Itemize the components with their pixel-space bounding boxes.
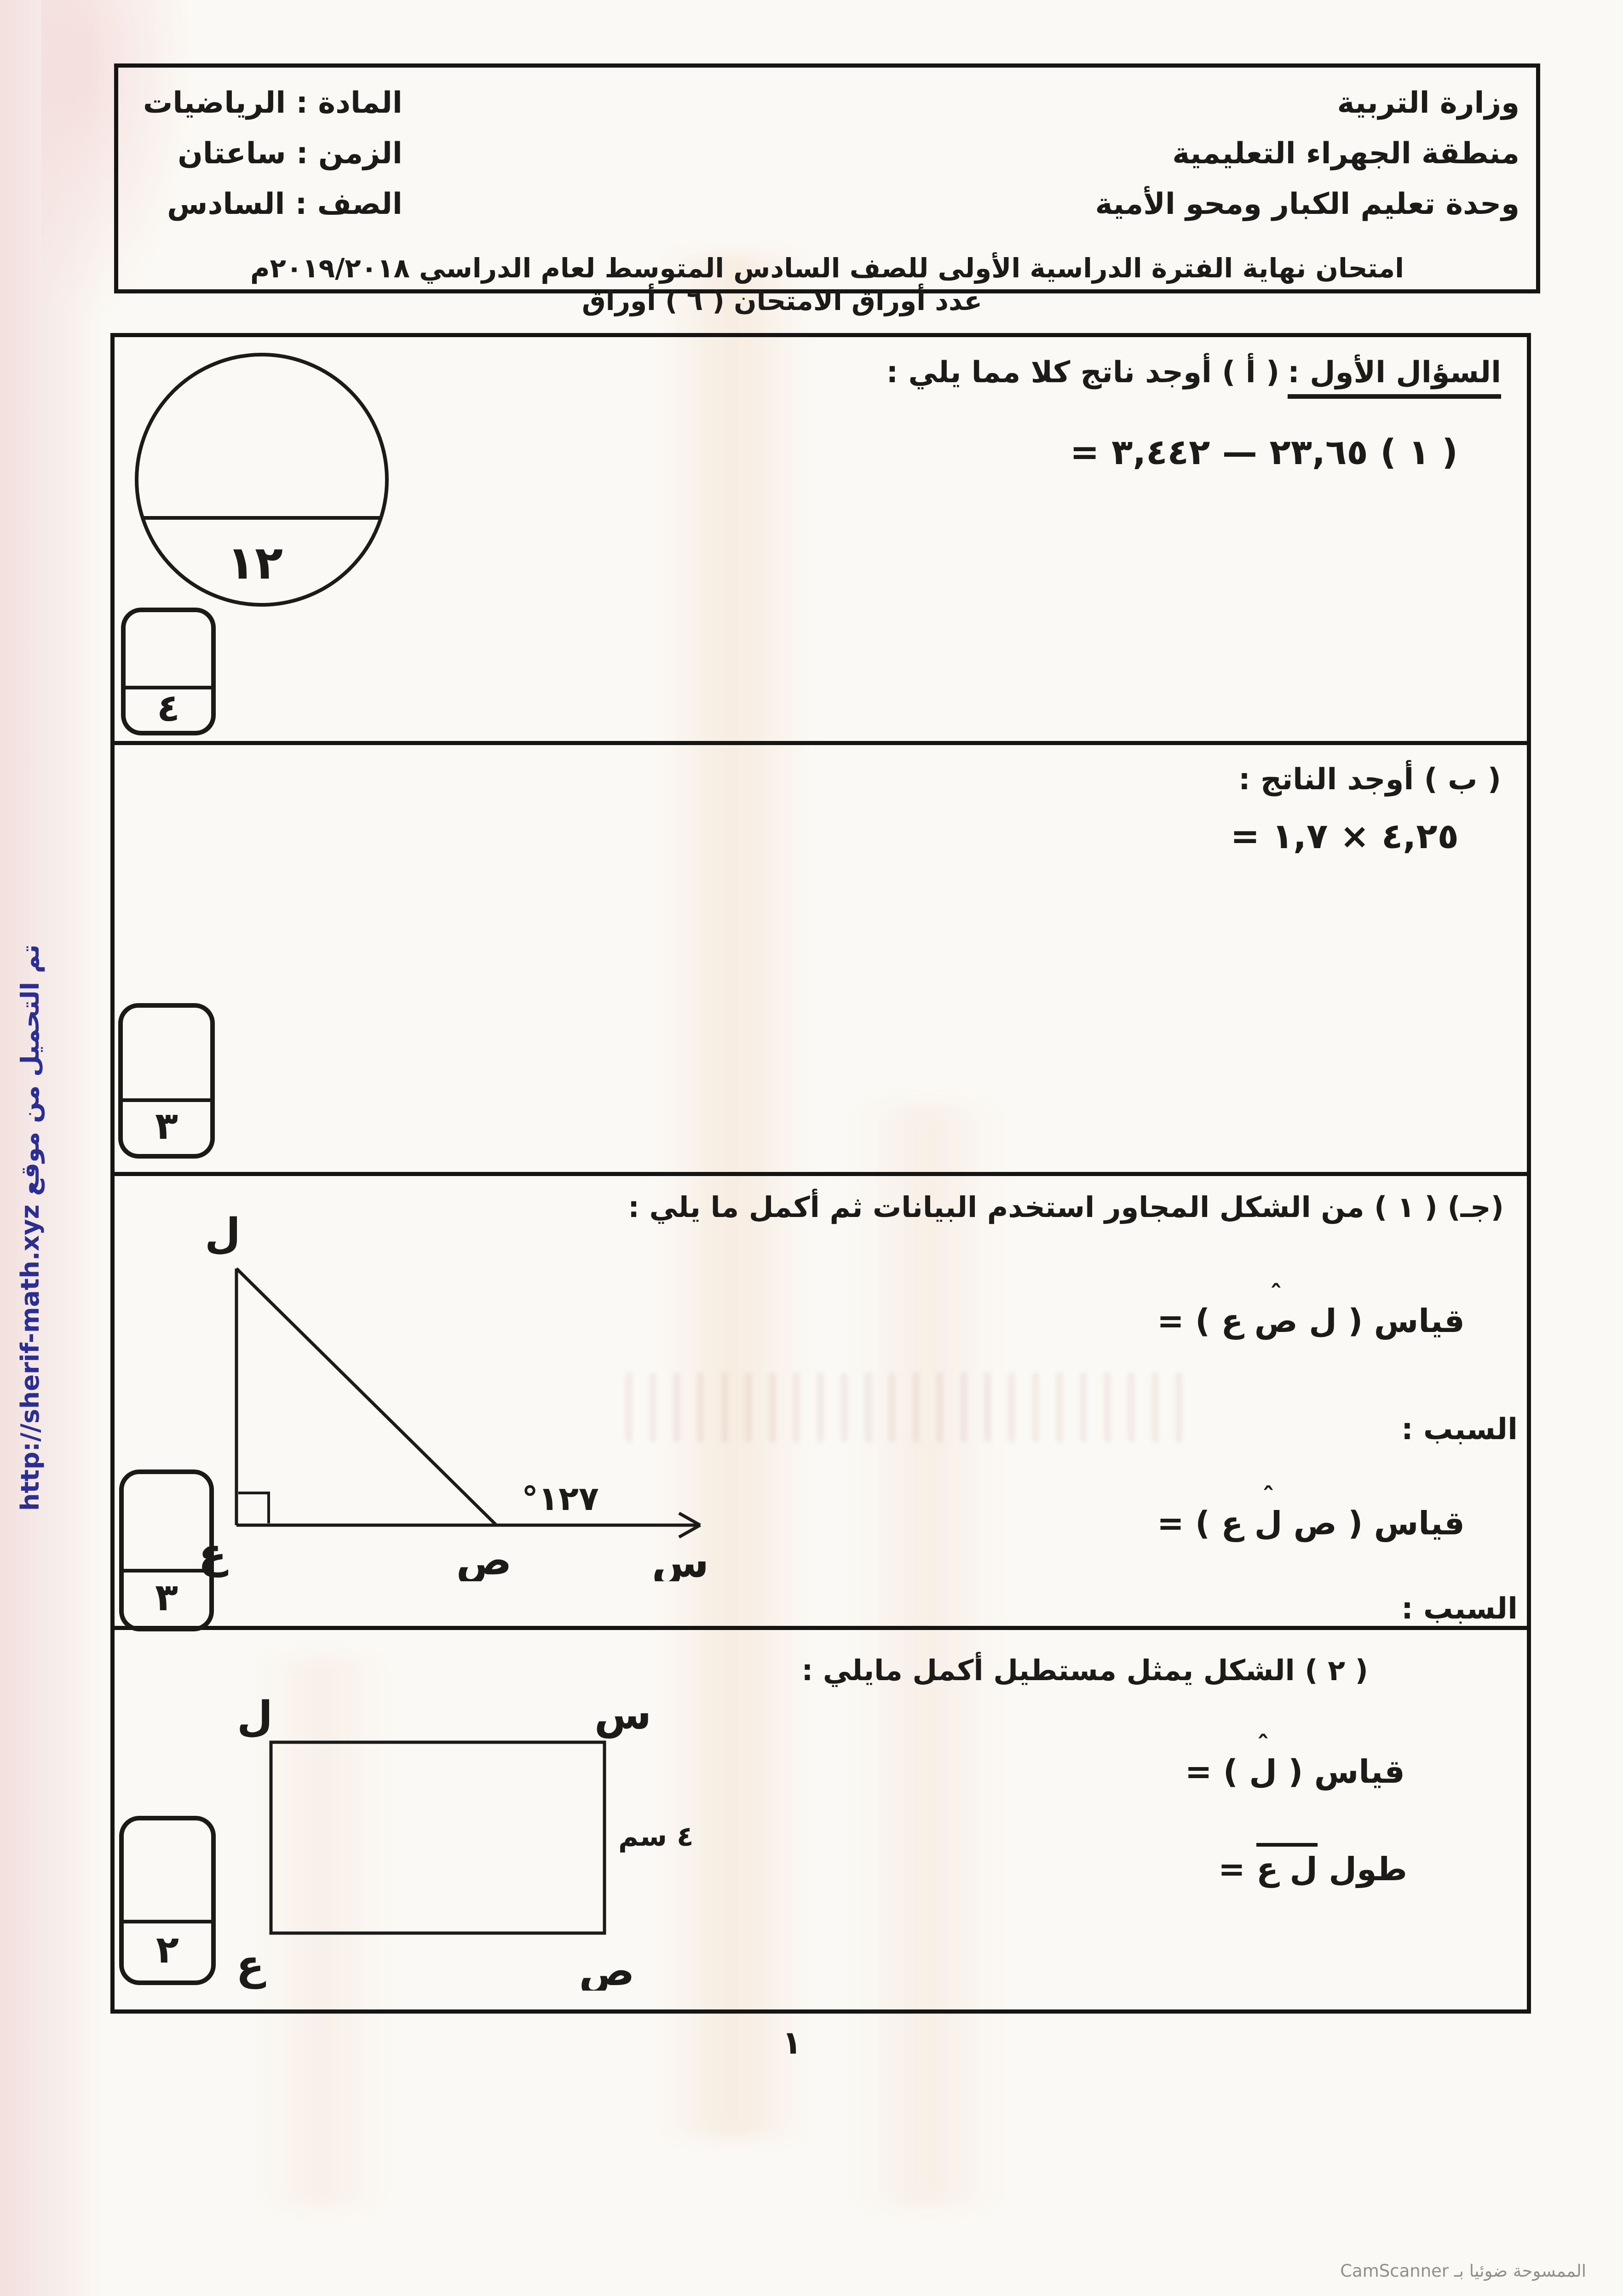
total-marks-circle-figure: ١٢ [126,349,397,618]
q1a-title-rest: ( أ ) أوجد ناتج كلا مما يلي : [886,356,1280,390]
exam-title: امتحان نهاية الفترة الدراسية الأولى للصف… [118,253,1536,284]
marks-value-q2: ٢ [124,1920,211,1980]
triangle-point-label: ص [456,1536,512,1581]
main-question-box: ١٢ السؤال الأول :( أ ) أوجد ناتج كلا مما… [110,333,1531,2014]
section-divider-2 [114,1172,1528,1176]
rect-top-right-label: س [594,1696,651,1739]
measure-suffix: ع ) = [1157,1504,1255,1542]
camscanner-credit: الممسوحة ضوئيا بـ CamScanner [1340,2261,1586,2281]
subject-line: المادة : الرياضيات [143,78,403,128]
header-left-column: المادة : الرياضيات الزمن : ساعتان الصف :… [143,78,403,230]
scanned-exam-page: { "header": { "ministry": "وزارة التربية… [0,0,1623,2296]
angle-hat-symbol: ˆ [1262,1484,1274,1510]
grade-line: الصف : السادس [143,179,403,230]
q2-length: طول ل ع = [1218,1850,1407,1888]
marks-value-q1a: ٤ [126,686,211,731]
measure-prefix: قياس ( [1277,1753,1405,1791]
q2-title: ( ٢ ) الشكل يمثل مستطيل أكمل مايلي : [801,1653,1368,1687]
measure-prefix: قياس ( ص [1282,1504,1465,1542]
segment-overline: ل ع [1256,1843,1318,1888]
marks-value-q1c: ٣ [124,1569,209,1627]
measure-prefix: قياس ( ل [1298,1302,1465,1340]
q1c-measure-1: قياس ( ل ˆص ع ) = [1157,1275,1465,1340]
rect-bottom-left-label: ع [239,1941,266,1989]
q1a-equation: ( ١ ) ٢٣,٦٥ — ٣,٤٤٢ = [1070,431,1458,472]
page-number: ١ [782,2024,802,2061]
measure-suffix: ع ) = [1157,1302,1255,1340]
site-watermark: تم التحميل من موقع http://sherif-math.xy… [16,944,45,1511]
section-divider-1 [114,741,1528,745]
rect-bottom-right-label: ص [579,1947,634,1991]
header-right-column: وزارة التربية منطقة الجهراء التعليمية وح… [1095,78,1519,230]
triangle-apex-label: ل [205,1210,241,1258]
q1b-title: ( ب ) أوجد الناتج : [1238,763,1501,797]
sheets-count: عدد أوراق الامتحان ( ٦ ) أوراق [322,285,1242,316]
measure-suffix: ) = [1185,1753,1249,1791]
markbox-q1b: ٣ [118,1003,215,1159]
district-line: منطقة الجهراء التعليمية [1095,128,1519,179]
q1c-measure-2: قياس ( ص ˆل ع ) = [1157,1478,1465,1542]
time-line: الزمن : ساعتان [143,128,403,179]
markbox-q1a: ٤ [121,608,216,735]
triangle-figure: ل ع ص س °١٢٧ [200,1209,733,1581]
unit-line: وحدة تعليم الكبار ومحو الأمية [1095,179,1519,230]
rect-top-left-label: ل [239,1696,273,1741]
marks-value-q1b: ٣ [123,1098,210,1154]
triangle-ray-label: س [652,1538,709,1581]
q1c-reason-2: السبب : [1401,1592,1518,1626]
ministry-line: وزارة التربية [1095,78,1519,128]
length-prefix: طول [1318,1850,1407,1888]
angle-hat-symbol: ˆ [1257,1733,1269,1758]
rect-side-length-label: ٤ سم [618,1820,694,1853]
markbox-q1c: ٣ [119,1469,214,1631]
header-box: وزارة التربية منطقة الجهراء التعليمية وح… [114,63,1540,293]
angle-hat-symbol: ˆ [1270,1282,1282,1307]
section-divider-3 [114,1626,1528,1630]
q1c-title: (جـ) ( ١ ) من الشكل المجاور استخدم البيا… [628,1190,1504,1224]
markbox-q2: ٢ [119,1816,216,1985]
q1a-title-underlined: السؤال الأول : [1288,356,1501,399]
q1a-title: السؤال الأول :( أ ) أوجد ناتج كلا مما يل… [886,356,1501,390]
total-marks-value: ١٢ [227,536,283,590]
q1b-equation: ٤,٢٥ × ١,٧ = [1231,815,1459,856]
exterior-angle-label: °١٢٧ [522,1479,599,1518]
q2-measure: قياس ( ˆل ) = [1185,1726,1405,1791]
length-suffix: = [1218,1850,1256,1888]
q1c-reason-1: السبب : [1401,1412,1518,1446]
